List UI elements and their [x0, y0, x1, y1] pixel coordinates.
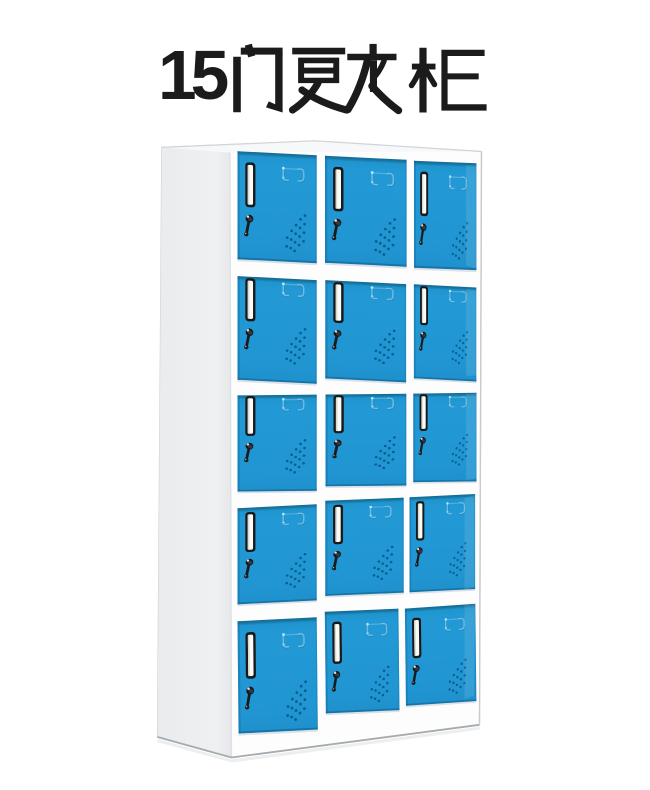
svg-text:15: 15	[158, 36, 228, 114]
